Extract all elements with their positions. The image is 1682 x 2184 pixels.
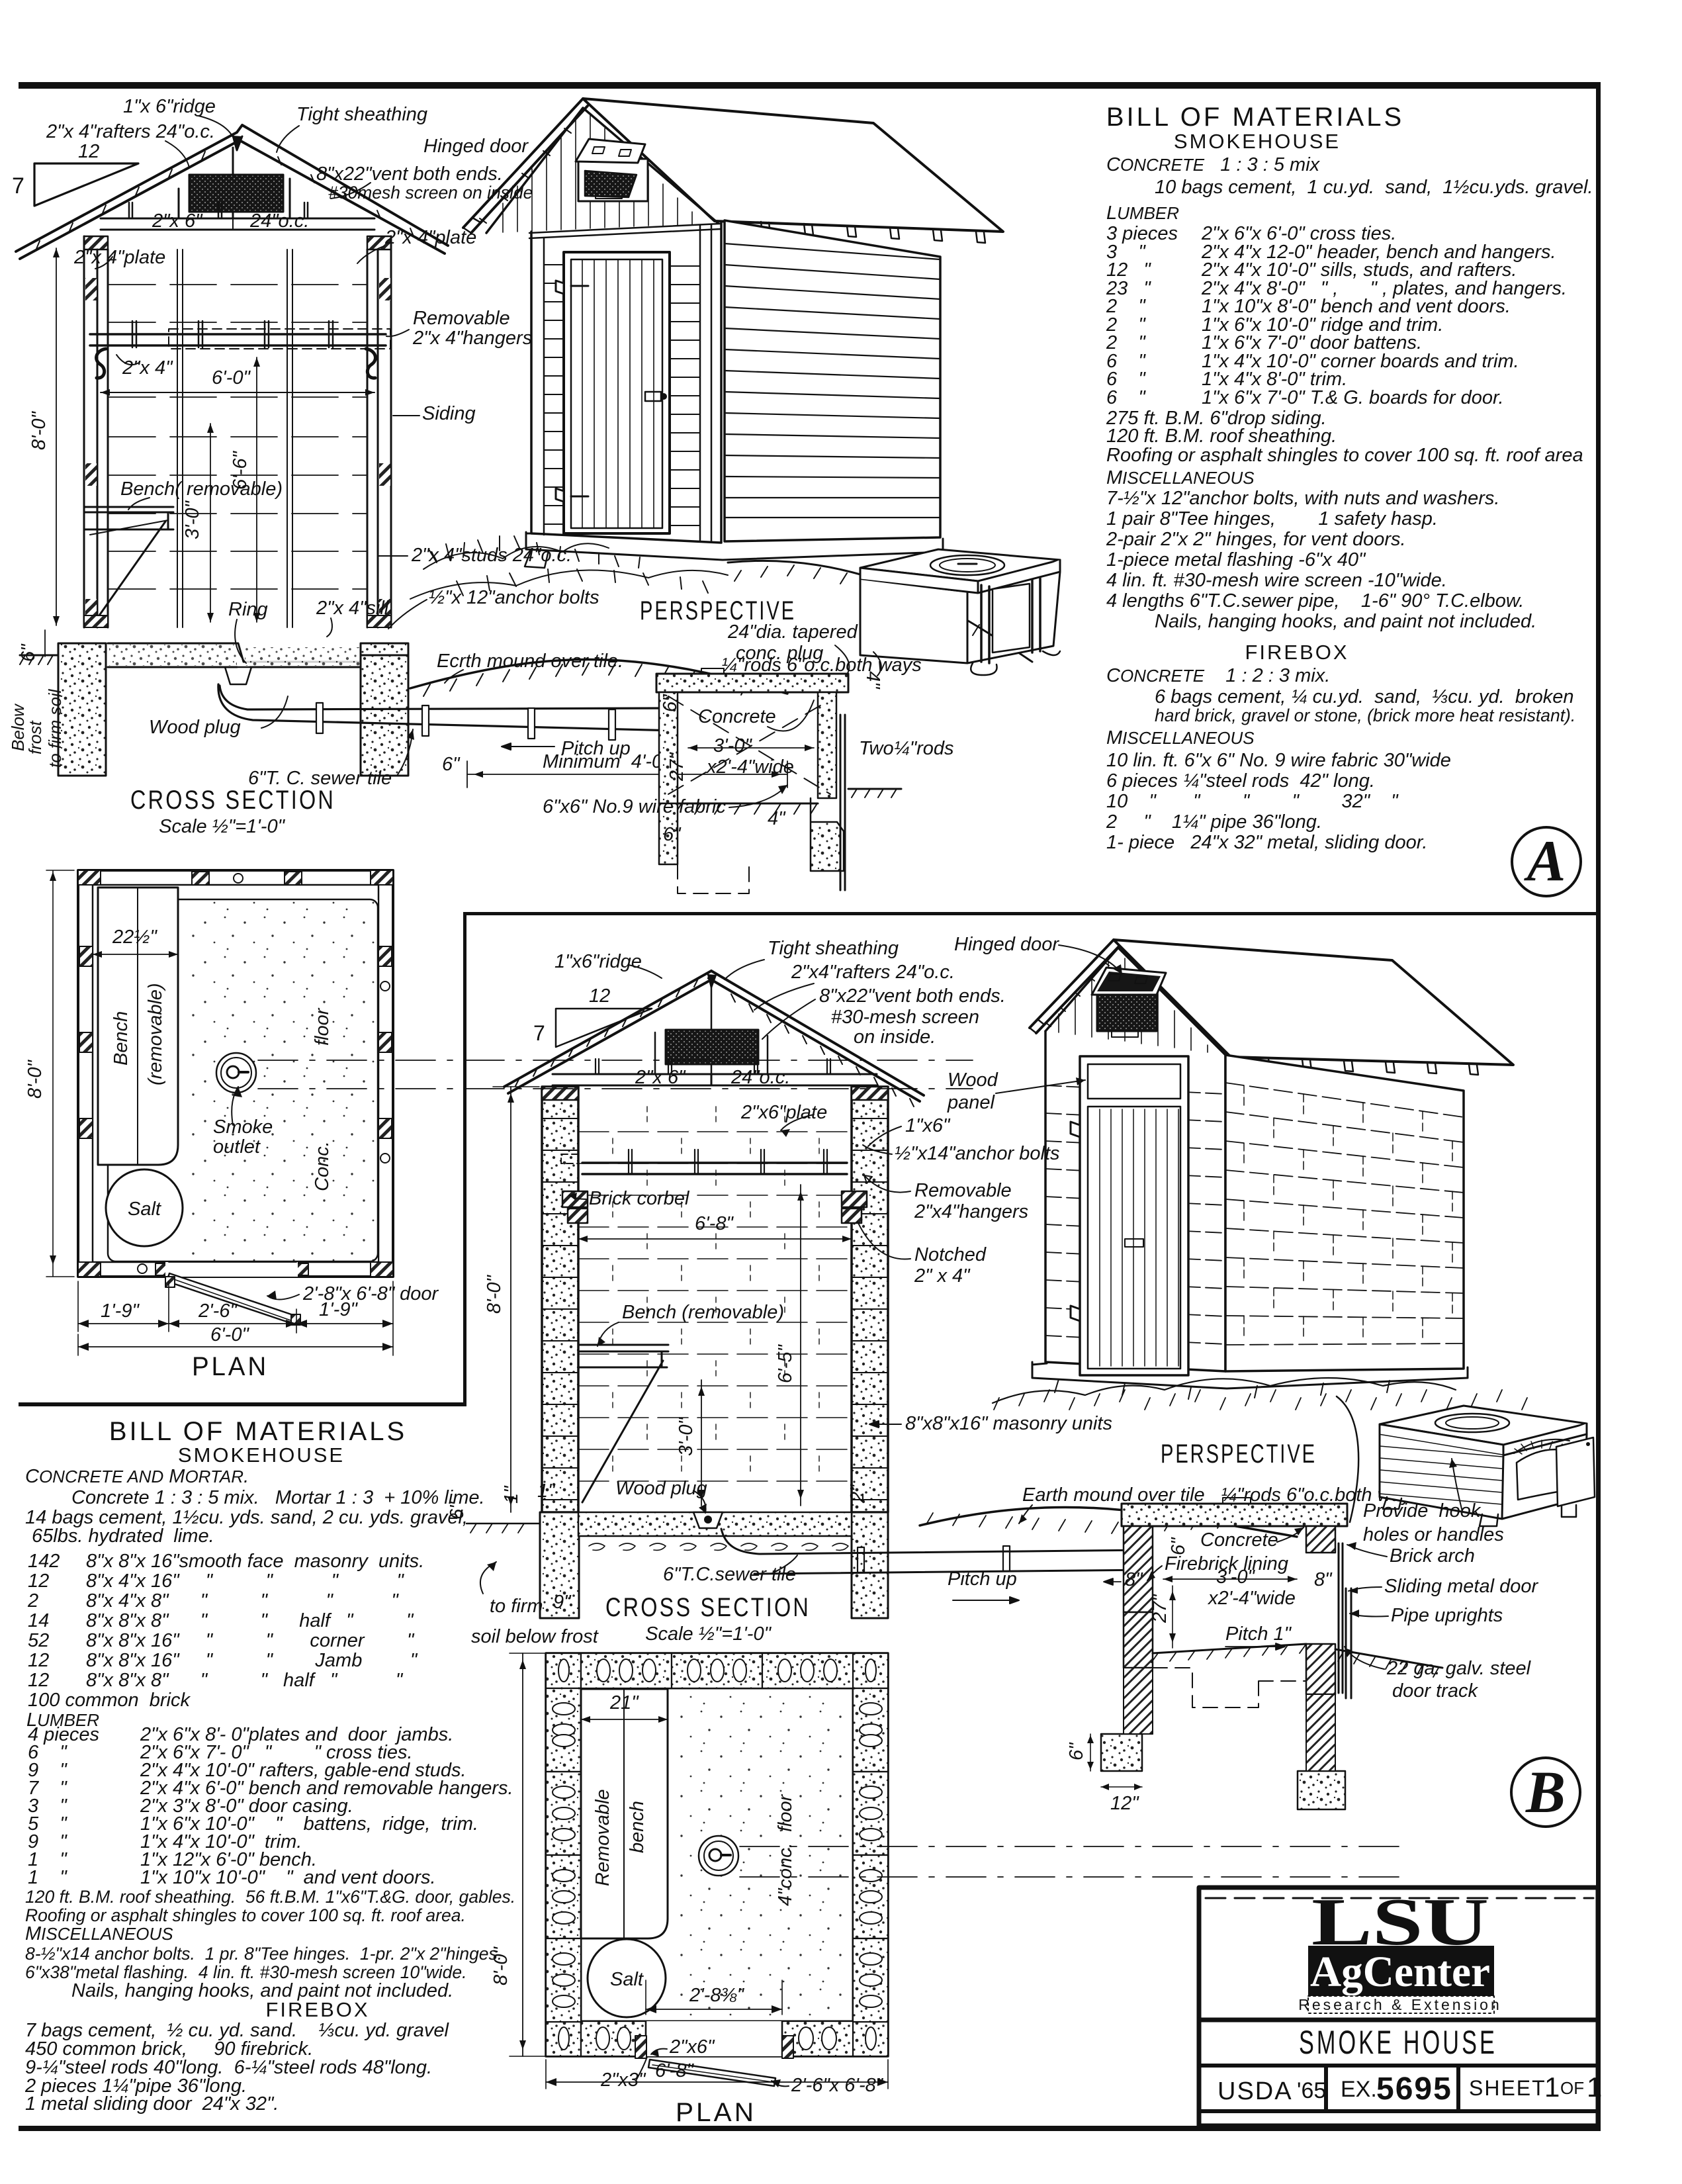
svg-text:8"x22"vent both ends.: 8"x22"vent both ends. (316, 163, 503, 185)
svg-text:9": 9" (553, 1592, 572, 1613)
svg-text:x2'-4"wide: x2'-4"wide (705, 756, 794, 778)
svg-text:SMOKEHOUSE: SMOKEHOUSE (1174, 130, 1341, 153)
svg-text:6'-0": 6'-0" (212, 367, 251, 388)
svg-text:Nails, hanging hooks, and pain: Nails, hanging hooks, and paint not incl… (71, 1980, 453, 2001)
svg-text:12: 12 (28, 1570, 49, 1592)
svg-text:8"x 8"x 16" " ": 8"x 8"x 16" " " corner " (86, 1630, 415, 1651)
svg-text:MISCELLANEOUS: MISCELLANEOUS (25, 1923, 173, 1944)
svg-text:Roofing or asphalt shingles to: Roofing or asphalt shingles to cover 100… (1106, 445, 1583, 466)
svg-text:27": 27" (666, 752, 687, 782)
svg-text:8"x22"vent both ends.: 8"x22"vent both ends. (819, 985, 1006, 1007)
svg-text:Removable: Removable (413, 308, 510, 329)
svg-text:Siding: Siding (422, 403, 476, 424)
svg-text:2-pair 2"x 2" hinges, for vent: 2-pair 2"x 2" hinges, for vent doors. (1106, 529, 1406, 550)
svg-text:CONCRETE AND MORTAR.: CONCRETE AND MORTAR. (25, 1466, 249, 1487)
svg-text:8"x 4"x 16" " ": 8"x 4"x 16" " " " " (86, 1570, 405, 1592)
svg-text:1 metal sliding door 24"x 32": 1 metal sliding door 24"x 32". (25, 2093, 279, 2115)
svg-text:8-½"x14 anchor bolts. 1 pr. 8: 8-½"x14 anchor bolts. 1 pr. 8"Tee hinges… (25, 1944, 502, 1964)
svg-text:8"x 8"x 16" " ": 8"x 8"x 16" " " Jamb " (86, 1650, 418, 1671)
svg-text:CROSS SECTION: CROSS SECTION (130, 786, 335, 815)
svg-text:2: 2 (27, 1590, 38, 1612)
svg-text:Wood plug: Wood plug (615, 1478, 707, 1499)
svg-text:conc. plug: conc. plug (736, 643, 823, 664)
svg-text:1"x 10"x 10'-0" " and vent: 1"x 10"x 10'-0" " and vent doors. (140, 1867, 436, 1888)
svg-text:7: 7 (12, 173, 24, 199)
svg-text:4 lengths 6"T.C.sewer pipe,: 4 lengths 6"T.C.sewer pipe, 1-6" 90° T.C… (1106, 590, 1524, 612)
svg-text:24"o.c.: 24"o.c. (249, 210, 309, 232)
svg-text:USDA: USDA (1217, 2077, 1293, 2105)
svg-text:14: 14 (28, 1610, 49, 1631)
svg-text:4": 4" (768, 808, 786, 829)
svg-text:Pitch 1": Pitch 1" (1225, 1623, 1292, 1645)
svg-text:1"x6": 1"x6" (905, 1115, 951, 1136)
svg-text:MISCELLANEOUS: MISCELLANEOUS (1106, 467, 1255, 488)
svg-text:6": 6" (442, 754, 461, 775)
svg-text:PERSPECTIVE: PERSPECTIVE (1161, 1439, 1317, 1469)
svg-text:10 lin. ft. 6"x 6" No. 9 wire: 10 lin. ft. 6"x 6" No. 9 wire fabric 30"… (1106, 750, 1451, 771)
svg-text:#30-mesh screen: #30-mesh screen (831, 1007, 979, 1028)
svg-text:12: 12 (589, 985, 610, 1007)
svg-text:Hinged door: Hinged door (954, 934, 1059, 955)
svg-text:soil below frost: soil below frost (471, 1626, 599, 1647)
svg-text:6'-5": 6'-5" (775, 1344, 796, 1383)
svg-text:8"x 8"x 8" " ": 8"x 8"x 8" " " half " " (86, 1610, 414, 1631)
svg-text:Tight sheathing: Tight sheathing (296, 104, 427, 125)
svg-text:2": 2" (847, 1484, 868, 1503)
svg-text:2'-8"x 6'-8" door: 2'-8"x 6'-8" door (302, 1283, 439, 1304)
svg-text:6"x38"metal flashing. 4 lin.: 6"x38"metal flashing. 4 lin. ft. #30-mes… (25, 1962, 467, 1982)
svg-text:Hinged door: Hinged door (423, 136, 529, 157)
svg-text:Ecrth mound over tile.: Ecrth mound over tile. (437, 651, 623, 672)
svg-text:21": 21" (609, 1692, 639, 1713)
svg-text:A: A (1524, 829, 1566, 893)
svg-text:6 ": 6 " (1106, 387, 1146, 408)
svg-text:8": 8" (1125, 1569, 1143, 1590)
svg-text:8"x8"x16" masonry units: 8"x8"x16" masonry units (905, 1413, 1112, 1434)
svg-text:2"x 6": 2"x 6" (635, 1067, 686, 1088)
svg-text:6'-8": 6'-8" (655, 2060, 694, 2081)
svg-text:5695: 5695 (1376, 2071, 1452, 2107)
svg-text:3'-0": 3'-0" (182, 500, 203, 539)
svg-text:Wood plug: Wood plug (149, 717, 241, 738)
svg-text:FIREBOX: FIREBOX (265, 1998, 369, 2021)
svg-text:FIREBOX: FIREBOX (1245, 641, 1349, 664)
svg-text:Pitch up: Pitch up (948, 1569, 1017, 1590)
svg-text:MISCELLANEOUS: MISCELLANEOUS (1106, 727, 1255, 749)
svg-text:Scale ½"=1'-0": Scale ½"=1'-0" (159, 816, 285, 837)
svg-text:Scale ½"=1'-0": Scale ½"=1'-0" (645, 1623, 772, 1645)
svg-text:to firm soil: to firm soil (45, 688, 65, 768)
svg-text:8'-0": 8'-0" (484, 1275, 505, 1314)
svg-text:12": 12" (1110, 1793, 1139, 1814)
svg-text:1"x6"ridge: 1"x6"ridge (554, 951, 642, 972)
svg-text:Brick corbel: Brick corbel (589, 1188, 690, 1209)
svg-text:½"x14"anchor bolts: ½"x14"anchor bolts (895, 1143, 1060, 1164)
svg-text:Roofing or asphalt shingles to: Roofing or asphalt shingles to cover 100… (25, 1905, 466, 1925)
svg-text:on inside.: on inside. (854, 1026, 936, 1048)
svg-text:SMOKEHOUSE: SMOKEHOUSE (178, 1443, 345, 1467)
svg-text:2"x6"plate: 2"x6"plate (740, 1102, 827, 1123)
svg-text:Earth mound over tile: Earth mound over tile (1022, 1484, 1205, 1506)
svg-text:2"x 4"hangers: 2"x 4"hangers (412, 328, 532, 349)
svg-text:Research & Extension: Research & Extension (1298, 1996, 1502, 2013)
svg-text:6": 6" (1066, 1742, 1087, 1760)
svg-text:8'-0": 8'-0" (24, 1060, 46, 1099)
svg-text:12: 12 (28, 1670, 49, 1691)
svg-text:bench: bench (627, 1801, 648, 1853)
svg-text:x2'-4"wide: x2'-4"wide (1207, 1588, 1296, 1609)
svg-text:22½": 22½" (112, 927, 157, 948)
svg-text:6"T.C.sewer tile: 6"T.C.sewer tile (663, 1564, 796, 1585)
svg-text:Provide hook: Provide hook (1363, 1500, 1482, 1522)
svg-text:2"x 6": 2"x 6" (152, 210, 203, 232)
svg-text:outlet: outlet (213, 1136, 261, 1158)
svg-text:6 pieces ¼"steel rods 42" lon: 6 pieces ¼"steel rods 42" long. (1106, 770, 1375, 792)
svg-text:PLAN: PLAN (192, 1352, 269, 1381)
svg-text:1"x 6"x 7'-0" T.& G. boards fo: 1"x 6"x 7'-0" T.& G. boards for door. (1202, 387, 1504, 408)
svg-text:BILL OF MATERIALS: BILL OF MATERIALS (1106, 103, 1404, 132)
svg-text:Concrete: Concrete (1200, 1529, 1278, 1551)
svg-text:AgCenter: AgCenter (1310, 1948, 1490, 1996)
svg-text:8"x 8"x 8" " ": 8"x 8"x 8" " " half " " (86, 1670, 404, 1691)
svg-text:Tight sheathing: Tight sheathing (768, 938, 899, 959)
svg-text:6'-8": 6'-8" (695, 1213, 734, 1234)
svg-text:1"x 6"ridge: 1"x 6"ridge (123, 96, 216, 117)
svg-text:8'-0": 8'-0" (490, 1946, 511, 1985)
svg-text:Minimum 4'-0": Minimum 4'-0" (543, 751, 670, 772)
svg-text:8"x 8"x 16"smooth face masonr: 8"x 8"x 16"smooth face masonry units. (86, 1551, 424, 1572)
svg-text:7: 7 (533, 1021, 545, 1045)
svg-text:2"x 4"rafters 24"o.c.: 2"x 4"rafters 24"o.c. (46, 121, 215, 142)
svg-text:frost: frost (25, 720, 45, 754)
svg-text:27": 27" (1149, 1594, 1171, 1623)
svg-text:B: B (1525, 1760, 1566, 1825)
svg-text:12: 12 (28, 1650, 49, 1671)
svg-text:1'-9": 1'-9" (101, 1300, 140, 1322)
svg-text:SMOKE HOUSE: SMOKE HOUSE (1299, 2024, 1497, 2061)
svg-text:3'-0": 3'-0" (713, 735, 752, 756)
svg-text:8'-0": 8'-0" (28, 411, 50, 450)
svg-text:8"x 4"x 8" " ": 8"x 4"x 8" " " " " (86, 1590, 399, 1612)
svg-text:Concrete: Concrete (698, 706, 776, 727)
svg-text:Nails, hanging hooks, and pain: Nails, hanging hooks, and paint not incl… (1155, 611, 1536, 632)
svg-text:120 ft. B.M. roof sheathing.: 120 ft. B.M. roof sheathing. (1106, 426, 1337, 447)
svg-text:Two¼"rods: Two¼"rods (859, 738, 954, 759)
svg-text:Bench: Bench (111, 1011, 132, 1066)
svg-text:1": 1" (501, 1485, 522, 1504)
svg-text:10 " " ": 10 " " " " 32" " (1106, 791, 1399, 812)
svg-text:65lbs. hydrated lime.: 65lbs. hydrated lime. (32, 1525, 214, 1547)
svg-text:4": 4" (862, 671, 883, 690)
svg-text:2"x4"hangers: 2"x4"hangers (914, 1201, 1028, 1222)
svg-text:6": 6" (1168, 1537, 1189, 1555)
svg-text:Brick arch: Brick arch (1390, 1545, 1475, 1567)
svg-text:(removable): (removable) (145, 983, 166, 1085)
svg-text:CONCRETE 1 : 2 : 3 mix.: CONCRETE 1 : 2 : 3 mix. (1106, 665, 1330, 686)
svg-text:24"o.c.: 24"o.c. (730, 1067, 790, 1088)
svg-text:24"dia. tapered: 24"dia. tapered (727, 621, 858, 643)
svg-text:Notched: Notched (914, 1244, 987, 1265)
svg-text:Firebrick lining: Firebrick lining (1165, 1553, 1288, 1574)
svg-text:Bench (removable): Bench (removable) (622, 1302, 784, 1323)
svg-text:LUMBER: LUMBER (1106, 203, 1179, 224)
svg-text:CROSS SECTION: CROSS SECTION (605, 1593, 811, 1622)
svg-text:1-piece metal flashing -6"x 40: 1-piece metal flashing -6"x 40" (1106, 549, 1366, 570)
svg-text:6 bags cement, ¼ cu.yd. sand,: 6 bags cement, ¼ cu.yd. sand, ⅓cu. yd. b… (1155, 686, 1574, 707)
svg-text:2'-6": 2'-6" (198, 1300, 238, 1322)
svg-text:Removable: Removable (592, 1789, 613, 1886)
svg-text:1: 1 (1544, 2071, 1560, 2103)
svg-text:2"x 4"plate: 2"x 4"plate (384, 227, 476, 248)
svg-text:holes or handles: holes or handles (1363, 1524, 1504, 1545)
svg-text:6": 6" (660, 694, 681, 712)
svg-text:4 lin. ft. #30-mesh wire scree: 4 lin. ft. #30-mesh wire screen -10"wide… (1106, 570, 1447, 591)
svg-text:1": 1" (537, 1480, 556, 1502)
svg-text:3'-0": 3'-0" (676, 1417, 697, 1456)
svg-text:7-½"x 12"anchor bolts, with nu: 7-½"x 12"anchor bolts, with nuts and was… (1106, 488, 1499, 509)
svg-text:panel: panel (947, 1092, 996, 1113)
svg-text:1 ": 1 " (28, 1867, 67, 1888)
svg-text:door track: door track (1392, 1680, 1478, 1702)
svg-text:Ring: Ring (228, 599, 268, 620)
svg-text:8": 8" (1314, 1569, 1333, 1590)
svg-text:1: 1 (1587, 2071, 1602, 2103)
svg-text:BILL OF MATERIALS: BILL OF MATERIALS (109, 1417, 407, 1446)
svg-text:OF: OF (1560, 2078, 1584, 2098)
svg-text:6": 6" (18, 643, 39, 662)
svg-text:100 common brick: 100 common brick (28, 1690, 191, 1711)
svg-text:'65: '65 (1297, 2078, 1326, 2103)
svg-text:PLAN: PLAN (676, 2098, 756, 2127)
svg-text:2"x 4"plate: 2"x 4"plate (73, 247, 165, 268)
svg-text:Salt: Salt (610, 1969, 644, 1990)
svg-text:Removable: Removable (914, 1180, 1012, 1201)
svg-text:142: 142 (28, 1551, 60, 1572)
svg-text:2"x6": 2"x6" (669, 2036, 715, 2058)
svg-text:Wood: Wood (948, 1069, 998, 1091)
svg-text:½"x 12"anchor bolts: ½"x 12"anchor bolts (429, 587, 599, 608)
svg-text:Bench( removable): Bench( removable) (120, 478, 283, 500)
svg-text:to firm: to firm (490, 1596, 543, 1617)
svg-text:2"x 4": 2"x 4" (122, 357, 173, 379)
svg-text:2'-6"x 6'-8": 2'-6"x 6'-8" (791, 2075, 884, 2096)
svg-text:Pipe uprights: Pipe uprights (1391, 1605, 1503, 1626)
svg-text:2'-8⅜": 2'-8⅜" (689, 1985, 745, 2006)
svg-text:6"x6" No.9 wire fabric: 6"x6" No.9 wire fabric (543, 796, 726, 817)
svg-text:10 bags cement, 1 cu.yd. san: 10 bags cement, 1 cu.yd. sand, 1½cu.yds.… (1155, 177, 1593, 198)
svg-text:12: 12 (78, 141, 99, 162)
svg-text:Sliding metal door: Sliding metal door (1384, 1576, 1538, 1597)
svg-text:120 ft. B.M. roof sheathing.: 120 ft. B.M. roof sheathing. 56 ft.B.M. … (25, 1887, 515, 1907)
svg-text:Concrete 1 : 3 : 5 mix. Mort: Concrete 1 : 3 : 5 mix. Mortar 1 : 3 + 1… (71, 1487, 485, 1508)
svg-text:6": 6" (663, 824, 682, 845)
svg-text:Smoke: Smoke (213, 1116, 273, 1138)
svg-text:6'-0": 6'-0" (210, 1324, 249, 1345)
svg-text:hard brick, gravel or stone, (: hard brick, gravel or stone, (brick more… (1155, 705, 1575, 725)
svg-text:2"x4"rafters 24"o.c.: 2"x4"rafters 24"o.c. (791, 962, 955, 983)
svg-text:1- piece 24"x 32" metal, sli: 1- piece 24"x 32" metal, sliding door. (1106, 832, 1427, 853)
svg-text:2" x 4": 2" x 4" (914, 1265, 971, 1287)
svg-text:2"x 4"sill: 2"x 4"sill (316, 598, 390, 619)
svg-text:22 ga. galv. steel: 22 ga. galv. steel (1386, 1658, 1532, 1679)
svg-text:2 " 1¼" pipe 36"long.: 2 " 1¼" pipe 36"long. (1106, 811, 1322, 833)
svg-text:1 pair 8"Tee hinges, 1: 1 pair 8"Tee hinges, 1 safety hasp. (1106, 508, 1438, 529)
svg-text:EX.: EX. (1341, 2077, 1377, 2102)
svg-text:SHEET: SHEET (1469, 2076, 1546, 2100)
svg-text:Conc.: Conc. (312, 1141, 333, 1191)
svg-text:floor: floor (312, 1007, 333, 1046)
svg-text:4"conc. floor: 4"conc. floor (775, 1794, 796, 1906)
svg-text:52: 52 (28, 1630, 49, 1651)
svg-text:CONCRETE 1 : 3 : 5 mix: CONCRETE 1 : 3 : 5 mix (1106, 154, 1321, 175)
svg-text:Salt: Salt (128, 1199, 162, 1220)
